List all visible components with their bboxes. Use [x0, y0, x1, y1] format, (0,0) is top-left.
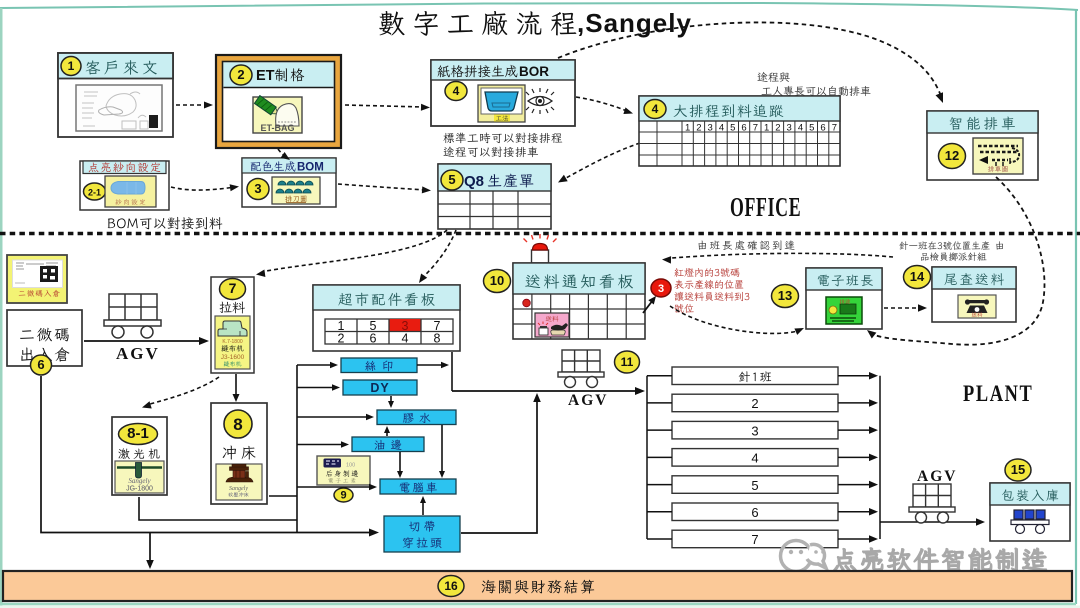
- svg-text:4: 4: [453, 84, 460, 98]
- svg-text:5: 5: [448, 172, 455, 187]
- svg-text:15: 15: [1011, 462, 1025, 477]
- svg-text:OFFICE: OFFICE: [730, 192, 801, 222]
- svg-text:Sangely: Sangely: [128, 477, 151, 485]
- svg-text:5: 5: [751, 478, 758, 493]
- svg-text:6: 6: [820, 123, 825, 134]
- svg-text:PLANT: PLANT: [963, 380, 1033, 407]
- svg-text:4: 4: [402, 332, 409, 346]
- svg-text:4: 4: [751, 451, 758, 466]
- svg-text:7: 7: [751, 532, 758, 547]
- svg-text:1: 1: [685, 123, 690, 134]
- svg-text:DY: DY: [370, 381, 389, 395]
- svg-text:AGV: AGV: [568, 392, 608, 409]
- svg-text:2: 2: [775, 123, 780, 134]
- svg-text:Q8: Q8: [464, 173, 484, 190]
- svg-text:7: 7: [753, 123, 758, 134]
- svg-text:6: 6: [751, 505, 758, 520]
- svg-text:13: 13: [778, 288, 792, 303]
- svg-text:5: 5: [730, 123, 735, 134]
- svg-text:8: 8: [233, 415, 242, 434]
- svg-text:6: 6: [370, 332, 377, 346]
- svg-text:9: 9: [340, 490, 346, 502]
- svg-text:,Sangely: ,Sangely: [577, 8, 692, 38]
- svg-text:8: 8: [434, 332, 441, 346]
- svg-text:10: 10: [490, 273, 504, 288]
- svg-text:7: 7: [832, 123, 837, 134]
- svg-text:Sangely: Sangely: [229, 486, 248, 492]
- svg-text:2: 2: [696, 123, 701, 134]
- svg-text:3: 3: [708, 123, 713, 134]
- svg-text:3: 3: [658, 283, 664, 295]
- svg-text:2: 2: [751, 396, 758, 411]
- svg-text:16: 16: [444, 579, 458, 593]
- svg-text:4: 4: [719, 123, 724, 134]
- svg-text:ET-BAG: ET-BAG: [260, 123, 294, 133]
- svg-text:1: 1: [68, 59, 75, 73]
- svg-text:4: 4: [652, 102, 659, 116]
- svg-text:11: 11: [621, 355, 634, 369]
- svg-text:12: 12: [945, 148, 959, 163]
- svg-text:5: 5: [809, 123, 814, 134]
- svg-text:BOR: BOR: [519, 64, 549, 79]
- svg-text:ET: ET: [256, 68, 275, 84]
- svg-text:J3-1600: J3-1600: [221, 354, 245, 361]
- svg-text:3: 3: [254, 181, 261, 196]
- svg-text:BOM: BOM: [297, 162, 324, 174]
- svg-text:1: 1: [764, 123, 769, 134]
- svg-text:2: 2: [338, 332, 345, 346]
- svg-text:7: 7: [229, 280, 237, 296]
- svg-text:100: 100: [346, 463, 355, 469]
- svg-text:2-1: 2-1: [88, 188, 101, 198]
- svg-text:3: 3: [751, 423, 758, 438]
- svg-text:6: 6: [741, 123, 746, 134]
- svg-text:4: 4: [798, 123, 803, 134]
- svg-text:3: 3: [787, 123, 792, 134]
- svg-text:AGV: AGV: [116, 344, 160, 363]
- svg-text:2: 2: [237, 67, 244, 82]
- svg-text:8-1: 8-1: [127, 425, 149, 442]
- svg-text:6: 6: [37, 357, 44, 372]
- svg-text:K.7-1800: K.7-1800: [222, 339, 243, 345]
- svg-text:JG-1800: JG-1800: [126, 486, 153, 493]
- svg-text:AGV: AGV: [917, 468, 957, 485]
- svg-text:14: 14: [910, 269, 925, 284]
